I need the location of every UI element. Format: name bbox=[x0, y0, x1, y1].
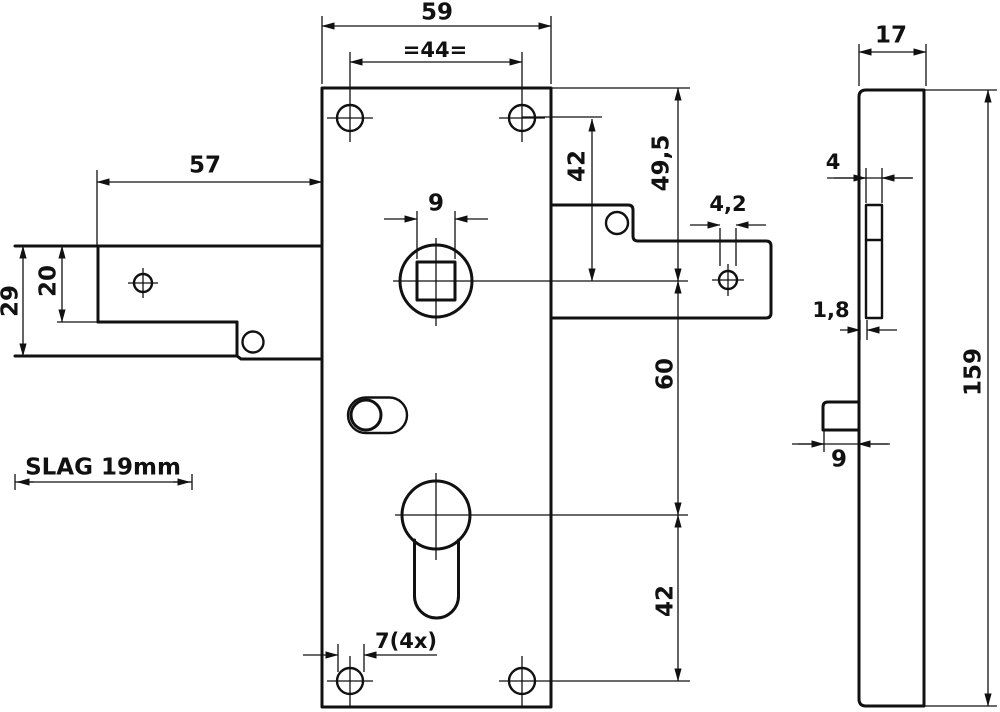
strike-tab bbox=[551, 205, 771, 318]
dim-7-4x-label: 7(4x) bbox=[375, 629, 437, 653]
dim-9-side-label: 9 bbox=[831, 447, 847, 473]
spindle-follower-hole bbox=[393, 238, 688, 326]
throw-label: SLAG 19mm bbox=[25, 455, 181, 481]
dim-4: 4 bbox=[826, 150, 913, 203]
dim-60-label: 60 bbox=[653, 358, 679, 390]
dim-20: 20 bbox=[36, 246, 63, 322]
faceplate-slot bbox=[866, 205, 882, 318]
dim-4-label: 4 bbox=[826, 150, 841, 174]
lock-case-outline bbox=[322, 88, 551, 707]
dim-57-label: 57 bbox=[189, 153, 221, 179]
dim-59-label: 59 bbox=[421, 0, 453, 26]
throw-annotation: SLAG 19mm bbox=[15, 455, 192, 491]
front-view-lock-case bbox=[322, 88, 688, 707]
dim-9-side: 9 bbox=[792, 430, 890, 473]
euro-cylinder-hole bbox=[395, 473, 688, 618]
dim-4-2: 4,2 bbox=[690, 192, 766, 266]
dim-29: 29 bbox=[0, 246, 24, 356]
dim-29-label: 29 bbox=[0, 285, 24, 317]
dim-9-square-label: 9 bbox=[428, 191, 444, 217]
bottom-screw-hole-left bbox=[327, 656, 373, 706]
dim-1-8-label: 1,8 bbox=[812, 298, 849, 322]
guide-pin bbox=[243, 332, 264, 353]
bolt-pin-hole bbox=[128, 268, 158, 298]
bolt-detail bbox=[15, 246, 322, 359]
dim-42-upper: 42 bbox=[522, 117, 602, 281]
dim-17: 17 bbox=[859, 23, 926, 87]
strike-screw-hole bbox=[712, 264, 744, 296]
dim-4-2-label: 4,2 bbox=[709, 192, 746, 216]
dim-159: 159 bbox=[961, 90, 989, 706]
dim-49-5-label: 49,5 bbox=[649, 135, 675, 192]
dim-44: =44= bbox=[350, 38, 522, 142]
oval-slot bbox=[348, 398, 407, 434]
dim-17-label: 17 bbox=[875, 23, 907, 49]
dim-42-lower-label: 42 bbox=[653, 585, 679, 617]
dim-42-upper-label: 42 bbox=[565, 150, 591, 182]
dim-159-label: 159 bbox=[961, 348, 987, 396]
dim-1-8: 1,8 bbox=[812, 298, 897, 340]
technical-drawing-lock: 59 =44= 9 57 29 20 SLAG 19mm bbox=[0, 0, 1000, 712]
dim-44-label: =44= bbox=[403, 38, 467, 62]
side-body-outline bbox=[859, 90, 924, 706]
side-view bbox=[823, 90, 997, 706]
bottom-screw-hole-right bbox=[499, 656, 545, 706]
strike-tab-hole bbox=[606, 212, 628, 234]
dim-57: 57 bbox=[97, 153, 322, 247]
side-latch-bolt bbox=[823, 402, 859, 430]
dim-20-label: 20 bbox=[36, 265, 62, 297]
